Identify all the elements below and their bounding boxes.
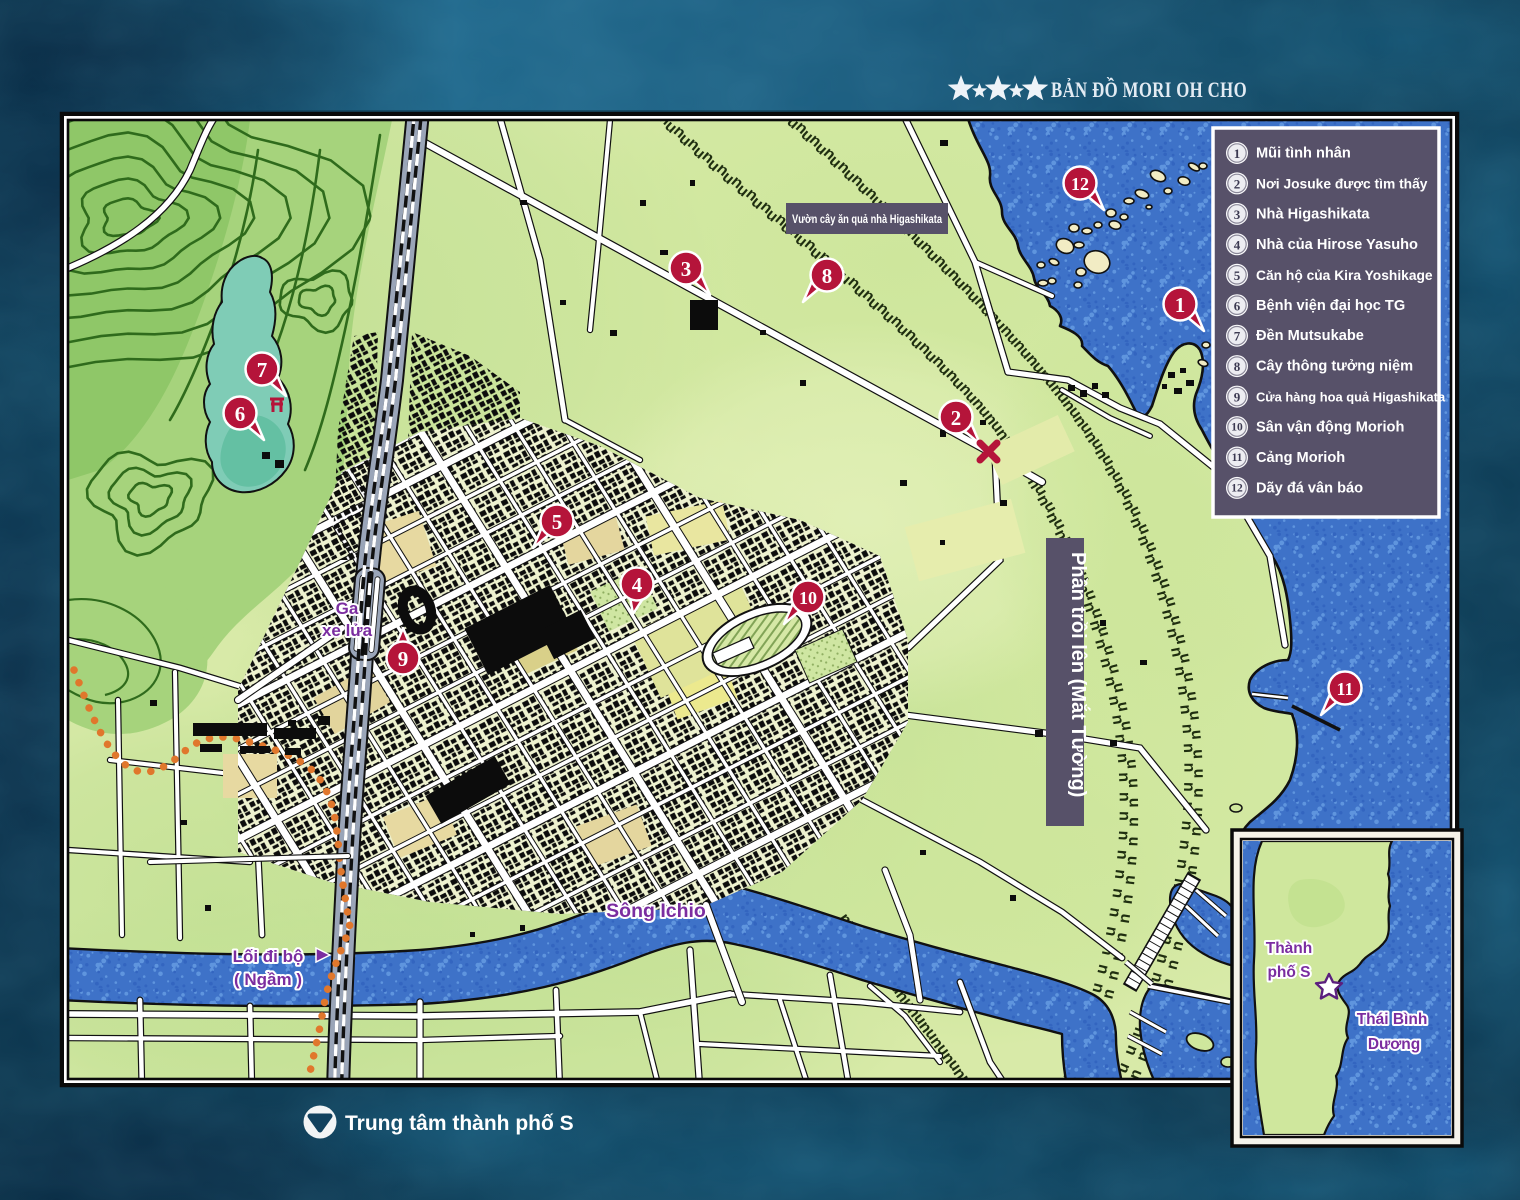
svg-text:2: 2: [951, 406, 962, 430]
svg-text:Phần trồi lên (Mắt Tường): Phần trồi lên (Mắt Tường): [1067, 552, 1091, 797]
svg-text:10: 10: [1231, 422, 1243, 434]
svg-text:2: 2: [1234, 176, 1241, 191]
svg-text:12: 12: [1231, 482, 1243, 494]
svg-text:6: 6: [1234, 298, 1241, 313]
svg-text:11: 11: [1336, 679, 1353, 699]
svg-text:9: 9: [398, 647, 409, 671]
svg-text:Trung tâm thành phố S: Trung tâm thành phố S: [345, 1112, 574, 1135]
svg-text:7: 7: [1234, 329, 1241, 344]
svg-text:Nhà của Hirose Yasuho: Nhà của Hirose Yasuho: [1256, 237, 1418, 253]
svg-text:4: 4: [1234, 237, 1241, 252]
svg-text:Bệnh viện đại học TG: Bệnh viện đại học TG: [1256, 298, 1405, 314]
svg-text:Đền Mutsukabe: Đền Mutsukabe: [1256, 328, 1364, 344]
svg-text:8: 8: [822, 264, 833, 288]
svg-text:4: 4: [632, 573, 643, 597]
svg-text:Cửa hàng hoa quả Higashikata: Cửa hàng hoa quả Higashikata: [1256, 390, 1446, 405]
svg-text:11: 11: [1232, 452, 1243, 464]
svg-text:9: 9: [1234, 390, 1241, 405]
svg-text:( Ngầm ): ( Ngầm ): [234, 970, 302, 989]
svg-text:Lối đi bộ: Lối đi bộ: [233, 947, 304, 966]
svg-text:Cây thông tưởng niệm: Cây thông tưởng niệm: [1256, 359, 1413, 375]
svg-text:7: 7: [257, 358, 268, 382]
svg-text:3: 3: [1234, 207, 1241, 222]
svg-text:5: 5: [552, 510, 563, 534]
svg-text:Thái Bình: Thái Bình: [1357, 1011, 1428, 1028]
svg-text:Ga: Ga: [336, 599, 359, 618]
svg-text:Nhà Higashikata: Nhà Higashikata: [1256, 206, 1370, 222]
svg-text:phố S: phố S: [1267, 964, 1310, 981]
svg-text:10: 10: [799, 588, 817, 608]
svg-text:Cảng Morioh: Cảng Morioh: [1256, 450, 1345, 466]
svg-text:Thành: Thành: [1266, 940, 1313, 957]
svg-text:Nơi Josuke được tìm thấy: Nơi Josuke được tìm thấy: [1256, 176, 1428, 191]
svg-text:Vườn cây ăn quả nhà Higashikat: Vườn cây ăn quả nhà Higashikata: [792, 214, 942, 226]
svg-text:3: 3: [681, 257, 692, 281]
svg-text:1: 1: [1175, 293, 1186, 317]
svg-text:1: 1: [1234, 146, 1241, 161]
svg-text:12: 12: [1071, 174, 1089, 194]
svg-text:BẢN ĐỒ MORI OH CHO: BẢN ĐỒ MORI OH CHO: [1051, 77, 1247, 102]
svg-text:5: 5: [1234, 268, 1241, 283]
svg-text:Sông Ichio: Sông Ichio: [606, 900, 706, 922]
svg-text:Dãy đá vân báo: Dãy đá vân báo: [1256, 480, 1363, 496]
svg-text:6: 6: [235, 402, 246, 426]
svg-text:Mũi tình nhân: Mũi tình nhân: [1256, 146, 1351, 162]
svg-text:Dương: Dương: [1368, 1036, 1420, 1053]
svg-text:8: 8: [1234, 359, 1241, 374]
svg-text:xe lửa: xe lửa: [322, 621, 373, 640]
svg-text:Căn hộ của Kira Yoshikage: Căn hộ của Kira Yoshikage: [1256, 268, 1433, 283]
svg-text:Sân vận động Morioh: Sân vận động Morioh: [1256, 420, 1404, 436]
